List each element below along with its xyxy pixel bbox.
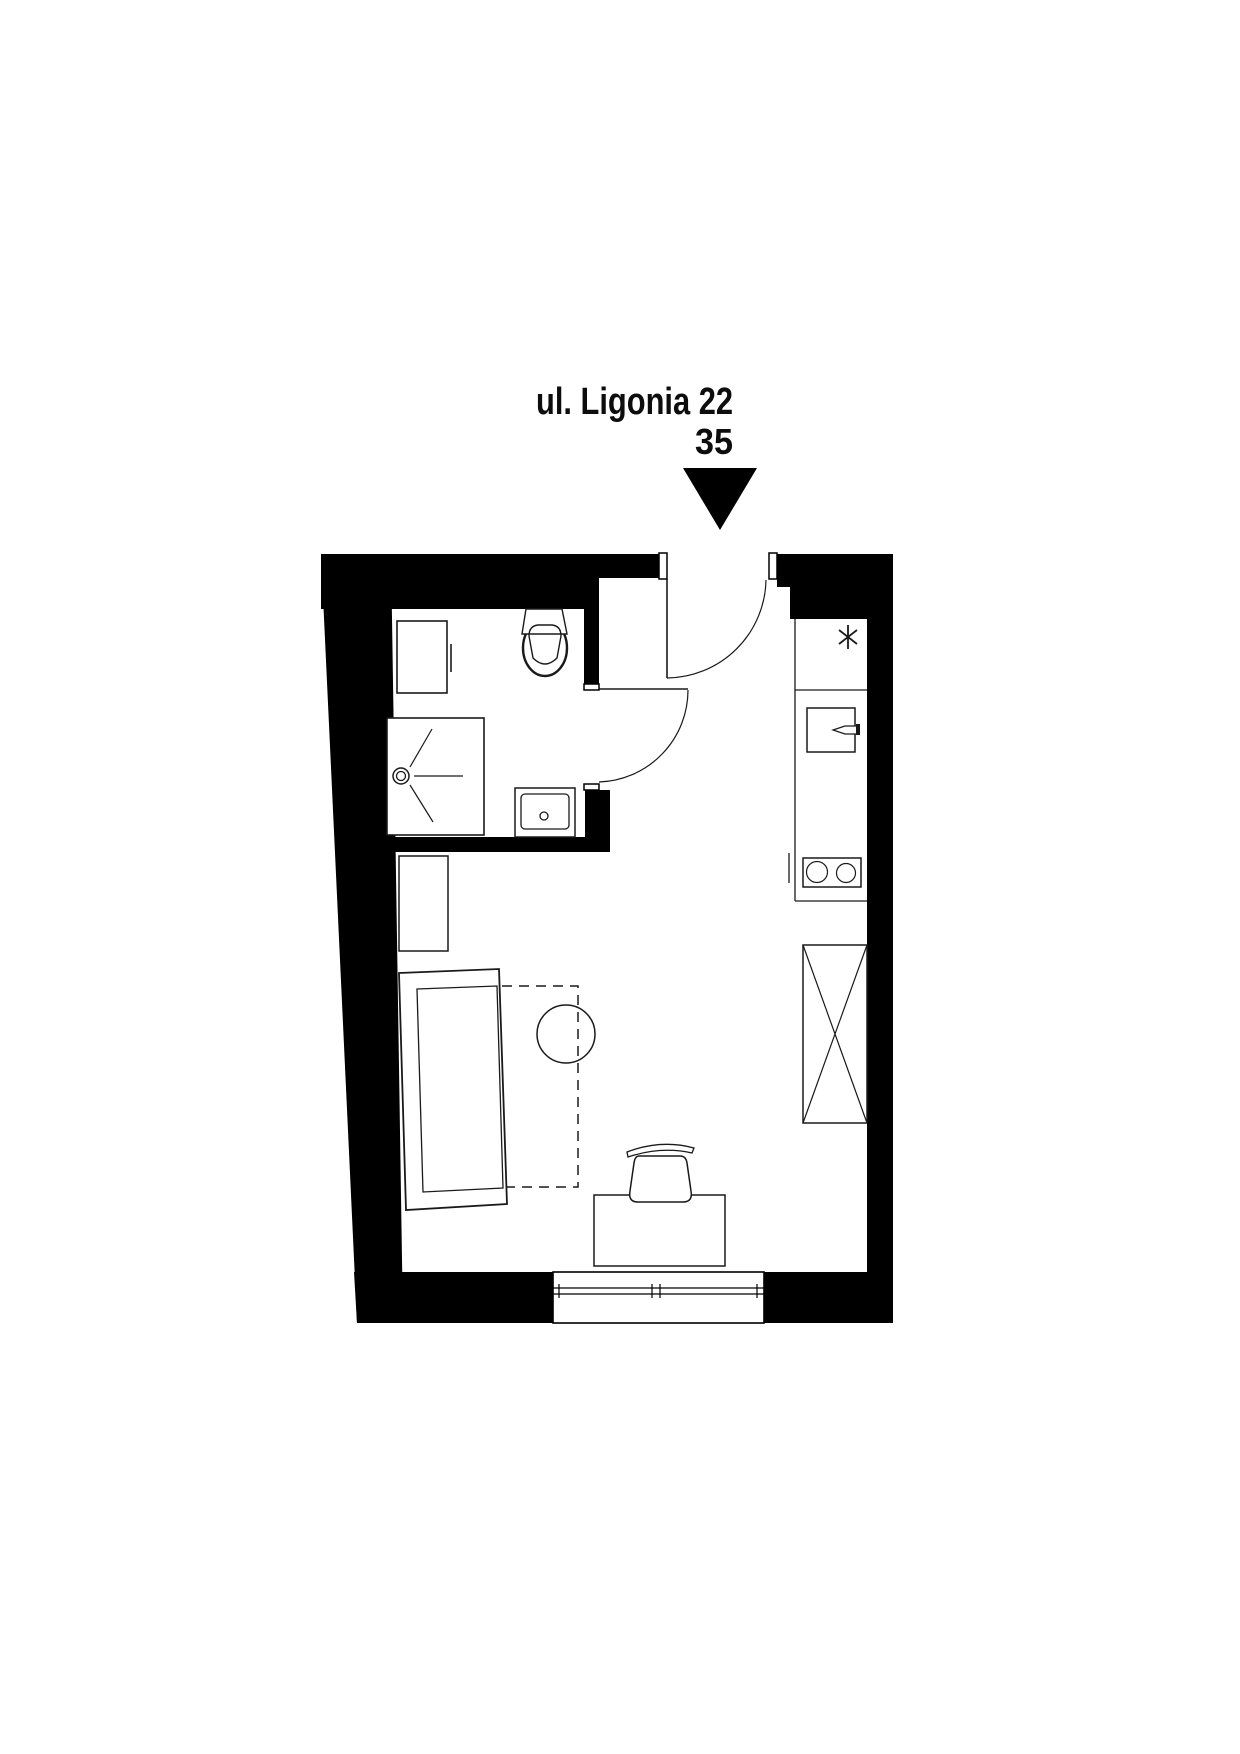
address-label: ul. Ligonia 22 (536, 381, 733, 423)
rug-outline-dashed (502, 986, 578, 1187)
round-table-icon (537, 1005, 595, 1063)
wardrobe-icon (803, 945, 867, 1123)
kitchen-sink-point-icon (839, 625, 857, 649)
bathroom-door-swing-arc (599, 690, 688, 782)
kitchen-fixtures (789, 619, 867, 1123)
entry-jamb-right (769, 553, 777, 579)
unit-number-label: 35 (695, 421, 733, 462)
wall-bathroom-bottom (391, 837, 610, 852)
chair-backrest (627, 1144, 694, 1157)
living-room-furniture (399, 856, 725, 1266)
washing-machine-icon (397, 621, 447, 693)
oven-cabinet-icon (807, 708, 860, 752)
bed-frame (399, 969, 507, 1210)
wall-bottom-right-block (764, 1272, 893, 1323)
wall-left (321, 554, 403, 1323)
shelf-icon (399, 856, 448, 951)
door-jambs (584, 553, 777, 790)
wall-bathroom-right-upper (584, 578, 599, 684)
bathroom-jamb-top (584, 684, 599, 690)
entry-jamb-left (659, 553, 667, 579)
chair-seat (630, 1156, 692, 1202)
window (553, 1272, 764, 1323)
entrance-arrow-icon (683, 468, 757, 530)
entry-door-swing-arc (667, 580, 766, 678)
oven-handle-end (856, 724, 860, 735)
bed-icon (399, 969, 507, 1210)
wall-right (867, 619, 893, 1272)
wall-top-right-block (777, 554, 893, 619)
cooktop-icon (789, 853, 861, 887)
washbasin-icon (515, 788, 575, 837)
desk-icon (594, 1195, 725, 1266)
wall-bottom-left (354, 1272, 553, 1323)
window-frame (553, 1272, 764, 1323)
toilet-icon (522, 609, 567, 676)
header: ul. Ligonia 22 35 (536, 381, 757, 530)
floor-plan-canvas: ul. Ligonia 22 35 (0, 0, 1240, 1754)
bathroom-fixtures (387, 609, 575, 837)
bathroom-jamb-bottom (584, 784, 599, 790)
floor-plan-page: ul. Ligonia 22 35 (0, 0, 1240, 1754)
shower-icon (387, 718, 484, 835)
bathroom-door (599, 689, 688, 782)
desk-chair-icon (627, 1144, 694, 1202)
entry-door (667, 579, 766, 678)
